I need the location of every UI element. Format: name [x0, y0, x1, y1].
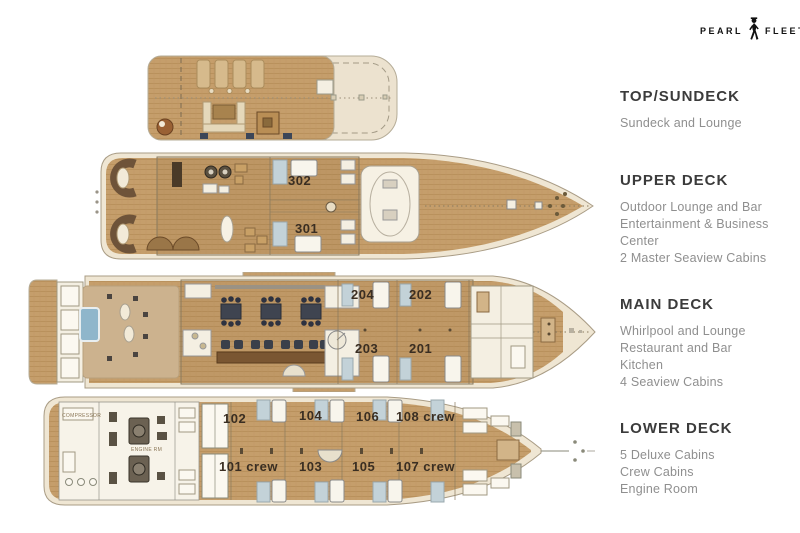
section-lower-deck: LOWER DECK 5 Deluxe Cabins Crew Cabins E…	[620, 420, 798, 498]
sundeck-bar	[257, 112, 279, 134]
logo-word-fleet: FLEET	[765, 26, 800, 36]
cabin-label-201: 201	[409, 341, 432, 356]
bowsprit	[541, 440, 595, 462]
logo-word-pearl: PEARL	[700, 26, 743, 36]
section-line: Crew Cabins	[620, 464, 798, 481]
sundeck-drawing	[145, 54, 400, 142]
pearl-fleet-logo: PEARL FLEET	[700, 16, 800, 46]
section-line: Kitchen	[620, 357, 798, 374]
section-line: Whirlpool and Lounge	[620, 323, 798, 340]
section-line: Sundeck and Lounge	[620, 115, 798, 132]
cabin-label-103: 103	[299, 459, 322, 474]
bathroom-tiles	[273, 222, 287, 246]
cabin-label-102: 102	[223, 411, 246, 426]
compressor-label: COMPRESSOR	[62, 413, 101, 419]
cabin-label-204: 204	[351, 287, 374, 302]
skylight-frame	[361, 166, 419, 242]
bar-counter	[217, 352, 329, 363]
main-deck-drawing	[25, 272, 599, 392]
section-title: LOWER DECK	[620, 420, 798, 437]
lounge-sofa	[203, 102, 245, 132]
cabin-label-104: 104	[299, 408, 322, 423]
section-title: MAIN DECK	[620, 296, 798, 313]
section-title: TOP/SUNDECK	[620, 88, 798, 105]
cabin-label-106: 106	[356, 409, 379, 424]
section-line: 4 Seaview Cabins	[620, 374, 798, 391]
section-title: UPPER DECK	[620, 172, 798, 189]
cabin-label-302: 302	[288, 173, 311, 188]
section-line: 2 Master Seaview Cabins	[620, 250, 798, 267]
cabin-label-203: 203	[355, 341, 378, 356]
cabin-label-107: 107 crew	[396, 459, 455, 474]
cabin-label-101: 101 crew	[219, 459, 278, 474]
section-line: Outdoor Lounge and Bar	[620, 199, 798, 216]
swim-platform	[29, 280, 83, 384]
dining-tables	[221, 296, 321, 327]
coffee-table	[213, 105, 235, 119]
cabin-label-105: 105	[352, 459, 375, 474]
section-line: Entertainment & Business Center	[620, 216, 798, 250]
sailor-figure-icon	[746, 16, 762, 46]
bed	[295, 236, 321, 252]
section-line: Restaurant and Bar	[620, 340, 798, 357]
lower-deck-plan: COMPRESSOR ENGINE RM 102 101 crew 104 10…	[35, 392, 600, 510]
upper-deck-plan: 302 301	[95, 150, 597, 262]
bathroom-tiles	[273, 160, 287, 184]
whirlpool-lounge	[80, 286, 179, 378]
cabin-label-301: 301	[295, 221, 318, 236]
whirlpool	[80, 308, 99, 341]
sundeck-plan	[145, 54, 400, 142]
main-deck-plan: 204 202 203 201	[25, 272, 599, 392]
cabin-label-202: 202	[409, 287, 432, 302]
cabin-label-108: 108 crew	[396, 409, 455, 424]
section-line: 5 Deluxe Cabins	[620, 447, 798, 464]
section-line: Engine Room	[620, 481, 798, 498]
section-top-sundeck: TOP/SUNDECK Sundeck and Lounge	[620, 88, 798, 132]
stairs	[172, 162, 182, 187]
section-main-deck: MAIN DECK Whirlpool and Lounge Restauran…	[620, 296, 798, 391]
forward-rooms	[471, 286, 533, 378]
tub	[221, 216, 233, 242]
engine-room-label: ENGINE RM	[131, 447, 162, 453]
upper-deck-drawing	[95, 150, 597, 262]
yacht-deck-plan-page: PEARL FLEET TOP/SUNDECK Sundeck and Loun…	[0, 0, 800, 533]
section-upper-deck: UPPER DECK Outdoor Lounge and Bar Entert…	[620, 172, 798, 267]
